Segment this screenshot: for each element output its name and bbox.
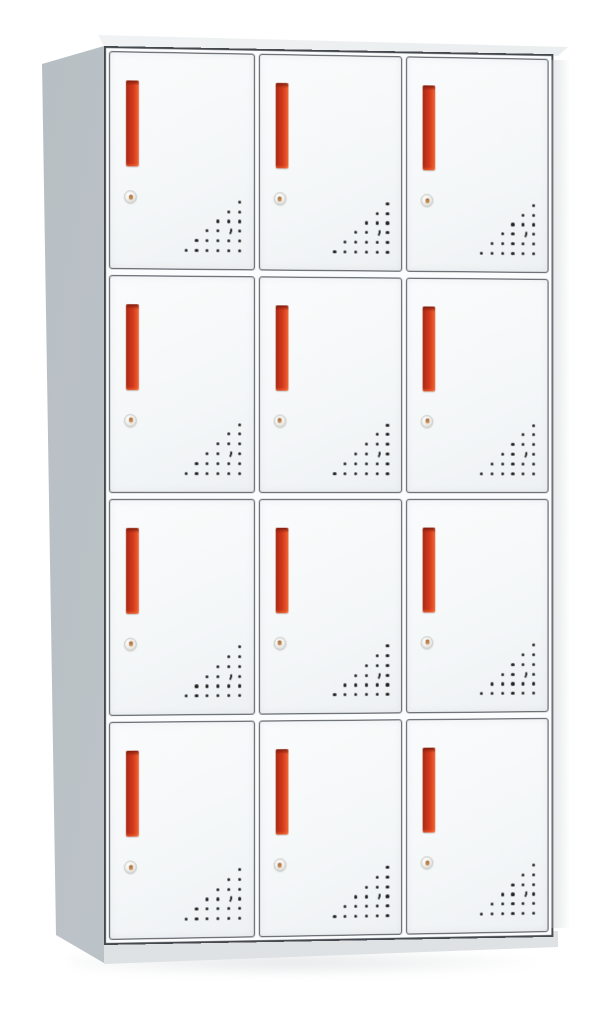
vent-hole [238, 239, 241, 242]
vent-hole [511, 902, 514, 905]
vent-hole [522, 472, 525, 475]
vent-hole [522, 912, 525, 915]
recessed-handle [126, 527, 139, 613]
vent-hole [344, 693, 347, 696]
vent-hole [238, 452, 241, 455]
vent-hole [532, 223, 535, 226]
lock-keyhole [425, 419, 429, 424]
vent-hole [195, 472, 198, 475]
cabinet-front-face [104, 46, 553, 945]
vent-hole [375, 472, 378, 475]
cam-lock-icon [421, 194, 434, 207]
vent-hole [227, 249, 230, 252]
recessed-handle [423, 85, 436, 170]
vent-holes-triangle-icon [480, 424, 536, 476]
vent-hole [344, 915, 347, 918]
vent-holes-triangle-icon [333, 201, 390, 254]
vent-hole [532, 682, 535, 685]
vent-hole [206, 694, 209, 697]
vent-hole [238, 655, 241, 658]
vent-hole [532, 892, 535, 895]
vent-hole [238, 472, 241, 475]
vent-hole [490, 462, 493, 465]
vent-crescent-hole [224, 226, 234, 236]
vent-hole [386, 251, 389, 254]
vent-hole [184, 918, 187, 921]
handle-top-shadow [423, 748, 436, 753]
vent-crescent-hole [518, 669, 527, 679]
vent-hole [532, 653, 535, 656]
vent-hole [511, 223, 514, 226]
vent-hole [522, 883, 525, 886]
right-edge-shadow [551, 60, 570, 928]
vent-hole [375, 905, 378, 908]
locker-door [406, 56, 548, 272]
vent-hole [238, 878, 241, 881]
vent-hole [532, 663, 535, 666]
vent-hole [532, 453, 535, 456]
vent-hole [375, 221, 378, 224]
vent-hole [386, 472, 389, 475]
vent-hole [216, 917, 219, 920]
cam-lock-icon [421, 415, 434, 428]
vent-hole [216, 229, 219, 232]
vent-hole [532, 673, 535, 676]
vent-hole [365, 462, 368, 465]
vent-hole [184, 695, 187, 698]
vent-hole [501, 903, 504, 906]
vent-hole [365, 231, 368, 234]
vent-hole [522, 443, 525, 446]
vent-hole [522, 682, 525, 685]
vent-hole [344, 250, 347, 253]
vent-holes-triangle-icon [184, 200, 241, 253]
vent-hole [227, 442, 230, 445]
vent-hole [365, 885, 368, 888]
vent-hole [511, 242, 514, 245]
vent-hole [206, 229, 209, 232]
vent-hole [511, 252, 514, 255]
vent-hole [238, 220, 241, 223]
vent-hole [490, 903, 493, 906]
vent-hole [354, 674, 357, 677]
locker-door [259, 54, 403, 272]
vent-hole [501, 252, 504, 255]
vent-hole [216, 888, 219, 891]
lock-keyhole [278, 418, 282, 423]
vent-hole [386, 241, 389, 244]
locker-door-grid [106, 48, 551, 943]
vent-hole [511, 883, 514, 886]
vent-hole [532, 233, 535, 236]
cam-lock-icon [124, 637, 137, 650]
vent-hole [490, 252, 493, 255]
vent-hole [532, 213, 535, 216]
vent-hole [532, 242, 535, 245]
vent-hole [365, 472, 368, 475]
handle-top-shadow [423, 306, 436, 311]
vent-hole [375, 433, 378, 436]
recessed-handle [275, 83, 288, 169]
lock-keyhole [128, 194, 132, 199]
vent-hole [501, 472, 504, 475]
cam-lock-icon [124, 190, 137, 203]
vent-hole [375, 241, 378, 244]
vent-hole [501, 453, 504, 456]
vent-hole [501, 462, 504, 465]
vent-crescent-hole [372, 891, 381, 901]
vent-crescent-hole [518, 449, 527, 459]
handle-top-shadow [126, 527, 139, 532]
vent-hole [532, 443, 535, 446]
vent-hole [522, 242, 525, 245]
vent-hole [386, 221, 389, 224]
vent-crescent-hole [372, 670, 381, 680]
vent-hole [532, 204, 535, 207]
vent-hole [490, 912, 493, 915]
vent-hole [238, 665, 241, 668]
lock-keyhole [278, 196, 282, 201]
vent-hole [511, 692, 514, 695]
vent-hole [511, 663, 514, 666]
cam-lock-icon [273, 414, 286, 427]
vent-hole [206, 675, 209, 678]
vent-hole [238, 907, 241, 910]
recessed-handle [126, 751, 139, 837]
vent-hole [490, 692, 493, 695]
cam-lock-icon [124, 861, 137, 874]
vent-hole [386, 885, 389, 888]
vent-hole [511, 453, 514, 456]
vent-hole [206, 907, 209, 910]
vent-hole [238, 249, 241, 252]
product-photo-stage [0, 0, 605, 1009]
vent-hole [365, 915, 368, 918]
vent-hole [375, 654, 378, 657]
lock-keyhole [425, 860, 429, 865]
vent-hole [354, 684, 357, 687]
vent-hole [386, 231, 389, 234]
vent-hole [365, 693, 368, 696]
vent-hole [227, 917, 230, 920]
vent-hole [386, 654, 389, 657]
handle-top-shadow [126, 80, 139, 85]
vent-hole [532, 883, 535, 886]
vent-hole [532, 864, 535, 867]
vent-hole [206, 452, 209, 455]
vent-hole [206, 239, 209, 242]
vent-hole [206, 249, 209, 252]
vent-hole [386, 904, 389, 907]
vent-hole [375, 683, 378, 686]
vent-hole [354, 915, 357, 918]
vent-hole [227, 888, 230, 891]
vent-hole [344, 684, 347, 687]
vent-hole [365, 905, 368, 908]
locker-door [259, 498, 403, 714]
vent-hole [354, 895, 357, 898]
vent-hole [227, 462, 230, 465]
vent-crescent-hole [518, 889, 527, 899]
vent-hole [386, 895, 389, 898]
vent-hole [238, 684, 241, 687]
vent-hole [238, 645, 241, 648]
vent-hole [386, 914, 389, 917]
vent-hole [532, 252, 535, 255]
handle-top-shadow [423, 85, 436, 90]
vent-hole [365, 664, 368, 667]
handle-top-shadow [275, 83, 288, 88]
handle-top-shadow [275, 527, 288, 532]
vent-hole [238, 230, 241, 233]
vent-hole [522, 653, 525, 656]
vent-hole [195, 908, 198, 911]
vent-hole [216, 452, 219, 455]
vent-hole [227, 694, 230, 697]
vent-hole [522, 252, 525, 255]
vent-hole [238, 462, 241, 465]
vent-holes-triangle-icon [480, 864, 536, 917]
vent-hole [354, 250, 357, 253]
vent-hole [375, 876, 378, 879]
handle-top-shadow [126, 304, 139, 309]
vent-holes-triangle-icon [184, 645, 241, 698]
vent-hole [238, 423, 241, 426]
vent-crescent-hole [224, 894, 234, 904]
vent-hole [532, 902, 535, 905]
vent-hole [216, 239, 219, 242]
vent-hole [375, 885, 378, 888]
cam-lock-icon [273, 636, 286, 649]
vent-hole [386, 683, 389, 686]
vent-hole [354, 472, 357, 475]
vent-hole [227, 433, 230, 436]
handle-top-shadow [423, 527, 436, 532]
vent-hole [480, 251, 483, 254]
vent-hole [501, 242, 504, 245]
vent-hole [511, 893, 514, 896]
vent-hole [354, 693, 357, 696]
vent-hole [216, 694, 219, 697]
vent-hole [511, 233, 514, 236]
cam-lock-icon [124, 414, 137, 427]
vent-hole [386, 452, 389, 455]
vent-hole [386, 423, 389, 426]
vent-hole [511, 673, 514, 676]
vent-hole [333, 915, 336, 918]
vent-crescent-hole [372, 449, 381, 459]
cam-lock-icon [421, 636, 434, 649]
vent-hole [354, 462, 357, 465]
vent-hole [386, 674, 389, 677]
vent-hole [522, 213, 525, 216]
cam-lock-icon [421, 856, 434, 869]
vent-hole [365, 674, 368, 677]
vent-hole [522, 223, 525, 226]
handle-top-shadow [275, 749, 288, 754]
vent-crescent-hole [224, 671, 234, 681]
recessed-handle [423, 748, 436, 833]
lock-keyhole [128, 418, 132, 423]
locker-door [109, 498, 255, 716]
vent-hole [490, 682, 493, 685]
vent-hole [238, 868, 241, 871]
vent-hole [522, 873, 525, 876]
recessed-handle [275, 527, 288, 612]
locker-door [259, 276, 403, 492]
vent-hole [522, 663, 525, 666]
vent-hole [227, 210, 230, 213]
vent-hole [354, 905, 357, 908]
vent-hole [375, 664, 378, 667]
vent-hole [501, 692, 504, 695]
vent-hole [354, 241, 357, 244]
vent-hole [365, 895, 368, 898]
vent-hole [195, 462, 198, 465]
locker-door [406, 718, 548, 934]
vent-hole [375, 443, 378, 446]
vent-hole [365, 683, 368, 686]
recessed-handle [423, 306, 436, 391]
vent-hole [365, 250, 368, 253]
vent-hole [184, 249, 187, 252]
vent-hole [532, 433, 535, 436]
vent-hole [522, 462, 525, 465]
vent-hole [227, 220, 230, 223]
vent-hole [333, 250, 336, 253]
vent-hole [522, 433, 525, 436]
vent-hole [206, 462, 209, 465]
vent-hole [333, 693, 336, 696]
vent-hole [532, 424, 535, 427]
vent-hole [195, 694, 198, 697]
vent-hole [184, 472, 187, 475]
recessed-handle [275, 305, 288, 390]
vent-hole [375, 212, 378, 215]
vent-hole [365, 452, 368, 455]
vent-hole [216, 675, 219, 678]
vent-hole [490, 472, 493, 475]
recessed-handle [126, 80, 139, 166]
vent-hole [216, 462, 219, 465]
locker-door [109, 721, 255, 940]
lock-keyhole [128, 641, 132, 646]
vent-hole [344, 905, 347, 908]
vent-hole [206, 472, 209, 475]
vent-hole [532, 912, 535, 915]
vent-hole [386, 433, 389, 436]
vent-hole [511, 462, 514, 465]
vent-hole [386, 443, 389, 446]
vent-hole [386, 202, 389, 205]
vent-hole [375, 462, 378, 465]
lock-keyhole [278, 863, 282, 868]
handle-top-shadow [275, 305, 288, 310]
vent-hole [216, 442, 219, 445]
vent-hole [238, 433, 241, 436]
vent-crescent-hole [518, 229, 527, 239]
cam-lock-icon [273, 859, 286, 872]
vent-hole [501, 912, 504, 915]
vent-holes-triangle-icon [480, 203, 536, 256]
vent-hole [206, 917, 209, 920]
vent-hole [522, 902, 525, 905]
vent-holes-triangle-icon [184, 868, 241, 922]
vent-hole [238, 210, 241, 213]
vent-hole [386, 645, 389, 648]
vent-hole [532, 462, 535, 465]
vent-hole [490, 242, 493, 245]
vent-hole [511, 682, 514, 685]
vent-hole [344, 462, 347, 465]
cam-lock-icon [273, 192, 286, 205]
vent-hole [206, 685, 209, 688]
vent-hole [344, 240, 347, 243]
vent-hole [227, 472, 230, 475]
recessed-handle [126, 304, 139, 390]
vent-hole [386, 875, 389, 878]
vent-hole [386, 866, 389, 869]
vent-hole [216, 472, 219, 475]
vent-hole [532, 472, 535, 475]
vent-holes-triangle-icon [333, 645, 390, 698]
vent-holes-triangle-icon [184, 423, 241, 476]
vent-hole [227, 665, 230, 668]
vent-hole [238, 694, 241, 697]
locker-door [109, 51, 255, 270]
lock-keyhole [425, 198, 429, 203]
vent-hole [195, 685, 198, 688]
vent-holes-triangle-icon [333, 423, 390, 476]
vent-hole [333, 472, 336, 475]
vent-hole [365, 241, 368, 244]
vent-hole [501, 682, 504, 685]
vent-hole [344, 472, 347, 475]
vent-hole [532, 692, 535, 695]
vent-hole [206, 898, 209, 901]
vent-hole [238, 442, 241, 445]
vent-hole [375, 693, 378, 696]
vent-hole [227, 878, 230, 881]
vent-hole [386, 664, 389, 667]
vent-hole [216, 907, 219, 910]
vent-hole [375, 914, 378, 917]
vent-hole [195, 249, 198, 252]
vent-hole [501, 232, 504, 235]
vent-hole [480, 692, 483, 695]
vent-hole [501, 893, 504, 896]
vent-hole [227, 907, 230, 910]
handle-top-shadow [126, 751, 139, 756]
vent-crescent-hole [372, 227, 381, 237]
vent-hole [354, 452, 357, 455]
vent-hole [227, 239, 230, 242]
recessed-handle [275, 749, 288, 835]
locker-door [406, 277, 548, 492]
vent-hole [195, 917, 198, 920]
locker-door [109, 275, 255, 493]
vent-hole [238, 887, 241, 890]
vent-hole [480, 472, 483, 475]
vent-hole [365, 443, 368, 446]
recessed-handle [423, 527, 436, 612]
vent-hole [511, 472, 514, 475]
vent-hole [375, 250, 378, 253]
lock-keyhole [425, 640, 429, 645]
vent-hole [216, 685, 219, 688]
vent-hole [511, 443, 514, 446]
vent-hole [227, 684, 230, 687]
